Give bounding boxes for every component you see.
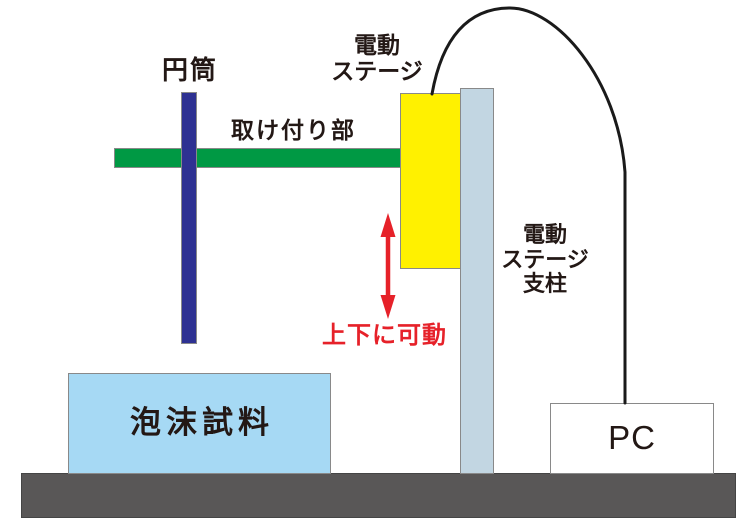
foam-sample-label: 泡沫試料 <box>125 406 274 441</box>
support-column-bar <box>460 88 494 474</box>
base-platform <box>21 473 736 518</box>
pc-box: PC <box>550 403 714 474</box>
mounting-part-label: 取け付り部 <box>231 118 371 144</box>
mounting-bar <box>114 148 402 168</box>
diagram-canvas: 泡沫試料 PC 円筒 取け付り部 電動 ステージ 電動 ステージ 支柱 上下に可… <box>0 0 750 525</box>
cylinder-bar <box>181 92 197 344</box>
up-arrowhead-icon <box>381 213 396 237</box>
down-arrowhead-icon <box>381 295 396 319</box>
motor-stage-support-label: 電動 ステージ 支柱 <box>494 223 596 297</box>
cylinder-label: 円筒 <box>160 56 220 85</box>
motor-stage-box <box>400 93 461 269</box>
movable-up-down-label: 上下に可動 <box>322 323 462 350</box>
motor-stage-label: 電動 ステージ <box>326 33 428 85</box>
pc-label: PC <box>608 420 656 457</box>
foam-sample-box: 泡沫試料 <box>68 373 331 474</box>
